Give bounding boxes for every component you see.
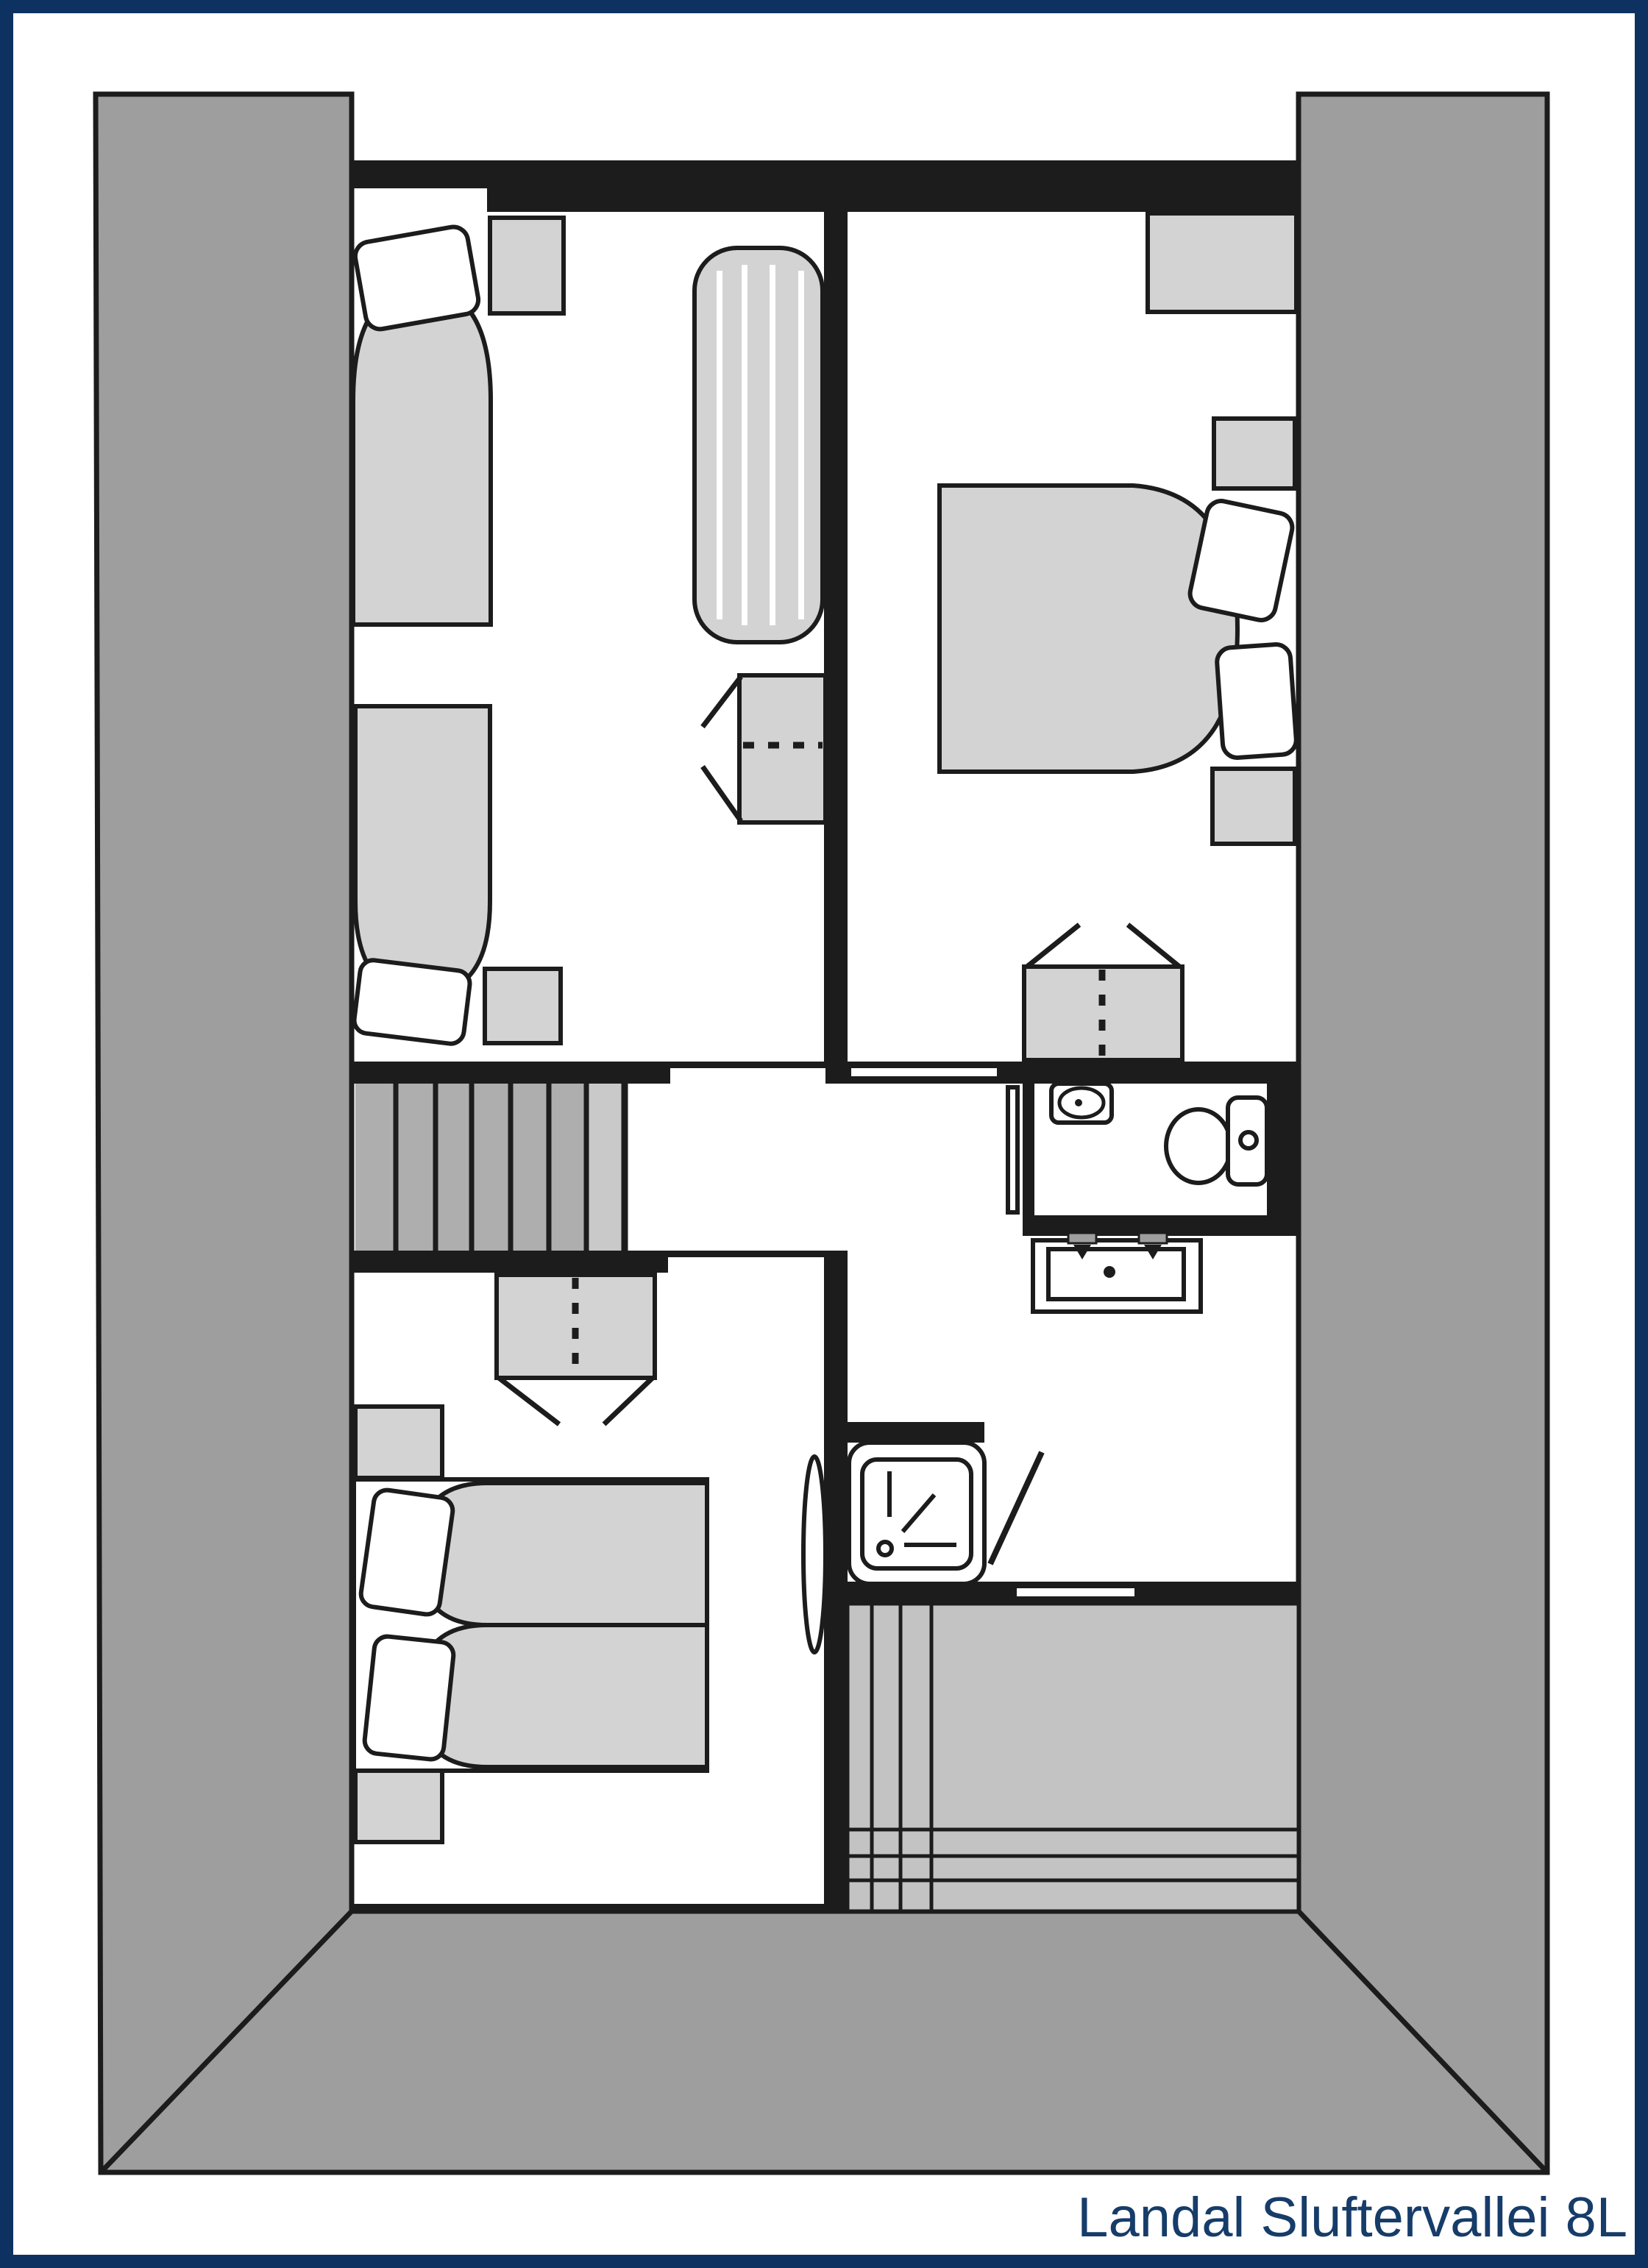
tap-icon: [1068, 1233, 1096, 1243]
plan-title: Landal Sluftervallei 8L: [1077, 2186, 1627, 2249]
nightstand-icon: [355, 1407, 442, 1478]
washbasin-icon: [1051, 1084, 1112, 1123]
vanity-sink-icon: [1033, 1233, 1201, 1312]
toilet-flush-button: [1240, 1132, 1257, 1148]
double-bed-icon: [354, 1479, 707, 1771]
mattress: [418, 1625, 707, 1767]
shower-drain: [878, 1542, 892, 1555]
nightstand-icon: [355, 1771, 442, 1842]
vanity-drain: [1104, 1266, 1115, 1278]
double-bed-icon: [940, 486, 1237, 772]
sloped-roof-area: [848, 1604, 1299, 1911]
toilet-bowl: [1166, 1109, 1231, 1183]
tap-icon: [1139, 1233, 1167, 1243]
wall-top: [352, 160, 1299, 212]
sloped-roof-floor: [848, 1604, 1299, 1911]
cupboard-icon: [1148, 213, 1296, 312]
staircase-icon: [355, 1084, 625, 1251]
nightstand-icon: [490, 218, 564, 313]
air-mattress-icon: [695, 248, 823, 642]
pillow-icon: [353, 224, 480, 331]
stair-landing-step: [586, 1084, 625, 1251]
single-bed-icon: [353, 288, 491, 625]
floorplan-page: Landal Sluftervallei 8L: [0, 0, 1648, 2268]
nightstand-icon: [1214, 419, 1295, 488]
nightstand-icon: [485, 969, 561, 1043]
door-leaf-icon: [803, 1457, 825, 1652]
wardrobe-body: [739, 675, 825, 822]
mattress: [418, 1483, 707, 1625]
wall-between-top-bedrooms: [824, 212, 848, 1062]
wall-shower-stub: [848, 1422, 984, 1443]
doorway-top-right-bedroom: [851, 1068, 997, 1076]
pillow-icon: [363, 1635, 455, 1760]
washbasin-drain: [1075, 1099, 1082, 1106]
vanity-basin: [1048, 1249, 1184, 1299]
pillow-icon: [352, 959, 471, 1045]
floorplan-svg: Landal Sluftervallei 8L: [0, 0, 1648, 2268]
pillow-icon: [1216, 644, 1297, 759]
wall-between-bottom-rooms: [824, 1251, 848, 1911]
wall-lower-cross: [352, 1251, 668, 1273]
doorway-top-left-bedroom: [670, 1062, 825, 1068]
pillow-icon: [359, 1488, 454, 1615]
door-leaf-icon: [1008, 1087, 1017, 1212]
wall-toilet-right: [1267, 1062, 1299, 1236]
doorway-shower-room: [1017, 1588, 1134, 1596]
doorway-bottom-left-bedroom: [668, 1251, 825, 1257]
wall-toilet-left: [1023, 1084, 1034, 1215]
single-bed-icon: [355, 706, 490, 995]
wall-cross-left: [352, 1062, 670, 1084]
nightstand-icon: [1212, 769, 1295, 844]
